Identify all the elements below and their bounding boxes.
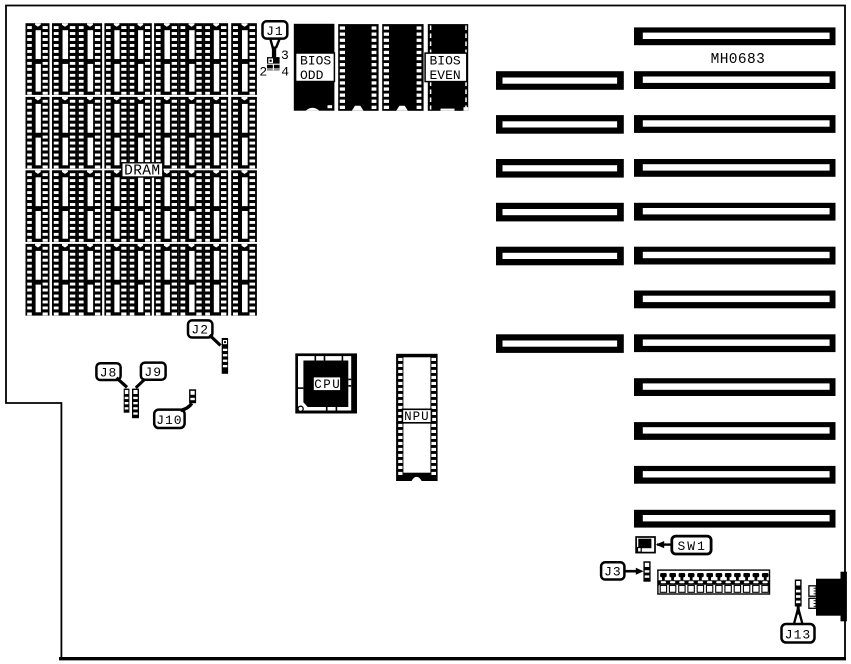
svg-text:MH0683: MH0683	[711, 52, 766, 68]
svg-text:BIOS: BIOS	[300, 54, 331, 69]
svg-text:J10: J10	[156, 413, 182, 428]
svg-text:J9: J9	[144, 365, 162, 380]
svg-text:CPU: CPU	[314, 378, 341, 392]
svg-text:EVEN: EVEN	[430, 68, 461, 83]
svg-text:BIOS: BIOS	[430, 54, 461, 69]
svg-text:SW1: SW1	[677, 539, 706, 554]
svg-text:3: 3	[281, 48, 289, 63]
svg-text:DRAM: DRAM	[124, 164, 160, 180]
svg-text:4: 4	[281, 65, 289, 80]
svg-text:J3: J3	[604, 565, 622, 580]
svg-text:J8: J8	[100, 365, 118, 380]
svg-text:J2: J2	[191, 323, 209, 338]
svg-text:2: 2	[259, 65, 267, 80]
svg-text:J13: J13	[785, 627, 811, 642]
svg-text:J1: J1	[266, 24, 284, 39]
svg-text:ODD: ODD	[300, 68, 324, 83]
svg-text:NPU: NPU	[404, 410, 430, 424]
